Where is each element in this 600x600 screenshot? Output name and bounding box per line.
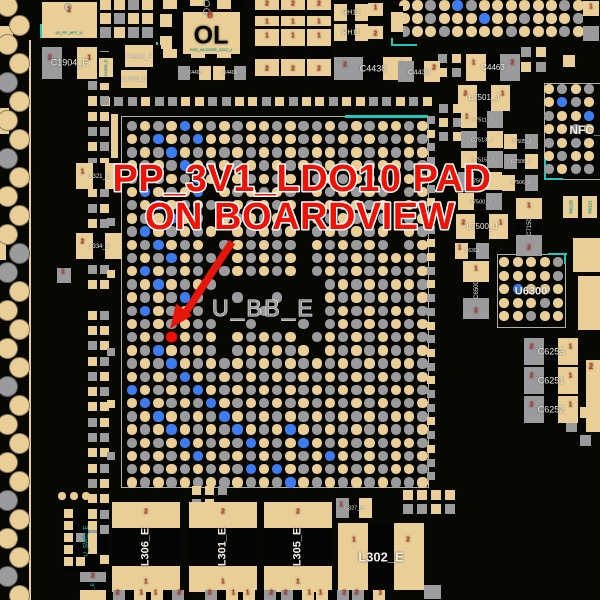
bga-pad[interactable] [193,358,203,368]
bga-pad[interactable] [100,96,109,105]
bga-pad[interactable] [351,398,361,408]
bga-pad[interactable] [114,97,123,106]
bga-pad[interactable] [351,477,361,487]
bga-pad[interactable] [364,438,374,448]
bga-pad[interactable] [259,121,269,131]
bga-pad[interactable] [423,97,432,106]
bga-pad[interactable] [364,266,374,276]
bga-pad[interactable] [272,345,282,355]
bga-pad[interactable] [559,13,570,24]
bga-pad[interactable] [140,345,150,355]
bga-pad[interactable] [153,345,163,355]
bga-pad[interactable] [325,160,335,170]
bga-pad[interactable] [382,97,391,106]
bga-pad[interactable] [312,226,322,236]
bga-pad[interactable] [404,358,414,368]
bga-pad[interactable] [206,160,216,170]
bga-pad[interactable] [232,213,242,223]
bga-pad[interactable] [417,504,427,514]
bga-pad[interactable] [166,358,176,368]
bga-pad[interactable] [193,147,203,157]
bga-pad[interactable] [232,121,242,131]
component-L302_E[interactable]: 12L302_E [338,523,424,590]
bga-pad[interactable] [153,187,163,197]
bga-pad[interactable] [193,385,203,395]
bga-pad[interactable] [100,418,109,427]
bga-pad[interactable] [100,494,109,503]
bga-pad[interactable] [404,213,414,223]
bga-pad[interactable] [351,160,361,170]
bga-pad[interactable] [219,438,229,448]
bga-pad[interactable] [232,372,242,382]
bga-pad[interactable] [153,477,163,487]
bga-pad[interactable] [193,292,203,302]
bga-pad[interactable] [206,358,216,368]
component-_E[interactable]: 2_E [80,572,106,600]
bga-pad[interactable] [325,187,335,197]
component-cap[interactable]: 12 [255,29,279,76]
bga-pad[interactable] [364,372,374,382]
bga-pad[interactable] [259,411,269,421]
bga-pad[interactable] [369,97,378,106]
bga-pad[interactable] [166,253,176,263]
component-C1905_E[interactable]: C1905_E [114,70,154,88]
bga-pad[interactable] [166,200,176,210]
bga-pad[interactable] [378,477,388,487]
bga-pad[interactable] [513,298,523,308]
bga-pad[interactable] [259,187,269,197]
bga-pad[interactable] [378,147,388,157]
bga-pad[interactable] [298,385,308,395]
bga-pad[interactable] [206,226,216,236]
bga-pad[interactable] [88,311,97,320]
bga-pad[interactable] [580,435,591,446]
bga-pad[interactable] [364,121,374,131]
bga-pad[interactable] [312,451,322,461]
bga-pad[interactable] [205,486,214,495]
bga-pad[interactable] [553,257,563,267]
bga-pad[interactable] [431,490,441,500]
bga-pad[interactable] [312,147,322,157]
bga-pad[interactable] [100,464,109,473]
bga-pad[interactable] [259,240,269,250]
bga-pad[interactable] [246,345,256,355]
bga-pad[interactable] [127,187,137,197]
bga-pad[interactable] [338,345,348,355]
bga-pad[interactable] [580,407,591,418]
via-pad[interactable] [0,34,18,55]
bga-pad[interactable] [272,292,282,302]
bga-pad[interactable] [351,253,361,263]
bga-pad[interactable] [351,200,361,210]
bga-pad[interactable] [521,47,531,57]
bga-pad[interactable] [153,240,163,250]
bga-pad[interactable] [153,200,163,210]
bga-pad[interactable] [70,492,78,500]
bga-pad[interactable] [325,345,335,355]
bga-pad[interactable] [219,451,229,461]
bga-pad[interactable] [325,411,335,421]
bga-pad[interactable] [285,253,295,263]
bga-pad[interactable] [452,0,463,11]
bga-pad[interactable] [219,187,229,197]
bga-pad[interactable] [246,147,256,157]
bga-pad[interactable] [285,147,295,157]
bga-pad[interactable] [325,174,335,184]
bga-pad[interactable] [553,311,563,321]
bga-pad[interactable] [153,385,163,395]
bga-pad[interactable] [351,226,361,236]
bga-pad[interactable] [364,292,374,302]
bga-pad[interactable] [193,345,203,355]
bga-pad[interactable] [364,424,374,434]
bga-pad[interactable] [232,358,242,368]
bga-pad[interactable] [439,104,448,113]
bga-pad[interactable] [404,477,414,487]
bga-pad[interactable] [351,438,361,448]
bga-pad[interactable] [232,253,242,263]
bga-pad[interactable] [571,84,581,94]
bga-pad[interactable] [513,271,523,281]
bga-pad[interactable] [140,424,150,434]
via-pad[interactable] [0,414,18,435]
bga-pad[interactable] [180,147,190,157]
bga-pad[interactable] [391,319,401,329]
bga-pad[interactable] [193,213,203,223]
bga-pad[interactable] [519,13,530,24]
bga-pad[interactable] [153,438,163,448]
bga-pad[interactable] [526,284,536,294]
bga-pad[interactable] [193,306,203,316]
bga-pad[interactable] [431,504,441,514]
bga-pad[interactable] [107,348,115,356]
via-pad[interactable] [9,433,30,454]
bga-pad[interactable] [544,124,554,134]
via-pad[interactable] [0,262,18,283]
bga-pad[interactable] [404,226,414,236]
bga-pad[interactable] [544,84,554,94]
bga-pad[interactable] [222,97,231,106]
bga-pad[interactable] [180,121,190,131]
bga-pad[interactable] [427,130,435,138]
component-cap[interactable]: 21 [352,590,385,600]
bga-pad[interactable] [298,451,308,461]
bga-pad[interactable] [351,385,361,395]
component-C334_E[interactable]: 2C334_E [76,233,122,259]
bga-pad[interactable] [378,160,388,170]
bga-pad[interactable] [206,424,216,434]
bga-pad[interactable] [140,147,150,157]
bga-pad[interactable] [232,464,242,474]
bga-pad[interactable] [64,545,73,554]
via-pad[interactable] [0,452,18,473]
bga-pad[interactable] [499,284,509,294]
component-cap[interactable]: 21 [307,0,331,26]
bga-pad[interactable] [153,319,163,329]
bga-pad[interactable] [153,226,163,236]
bga-pad[interactable] [259,424,269,434]
bga-pad[interactable] [259,385,269,395]
bga-pad[interactable] [141,97,150,106]
bga-pad[interactable] [100,387,109,396]
bga-pad[interactable] [404,292,414,302]
bga-pad[interactable] [338,147,348,157]
bga-pad[interactable] [526,311,536,321]
bga-pad[interactable] [206,411,216,421]
bga-pad[interactable] [180,174,190,184]
bga-pad[interactable] [100,188,109,197]
bga-pad[interactable] [88,402,97,411]
via-pad[interactable] [9,585,30,600]
bga-pad[interactable] [391,292,401,302]
bga-pad[interactable] [58,492,66,500]
bga-pad[interactable] [285,358,295,368]
via-pad[interactable] [0,224,18,245]
component-L305_E[interactable]: 21L305_E [264,502,332,592]
via-pad[interactable] [0,72,18,93]
bga-pad[interactable] [427,431,435,439]
bga-pad[interactable] [193,372,203,382]
bga-pad[interactable] [166,292,176,302]
bga-pad[interactable] [427,198,435,206]
bga-pad[interactable] [153,451,163,461]
bga-pad[interactable] [412,13,423,24]
bga-pad[interactable] [513,311,523,321]
bga-pad[interactable] [325,253,335,263]
bga-pad[interactable] [166,451,176,461]
bga-pad[interactable] [246,438,256,448]
bga-pad[interactable] [127,345,137,355]
bga-pad[interactable] [153,279,163,289]
bga-pad[interactable] [166,213,176,223]
bga-pad[interactable] [100,372,109,381]
bga-pad[interactable] [219,372,229,382]
bga-pad[interactable] [445,490,455,500]
bga-pad[interactable] [391,147,401,157]
bga-pad[interactable] [100,280,109,289]
bga-pad[interactable] [166,372,176,382]
bga-pad[interactable] [100,142,109,151]
bga-pad[interactable] [526,257,536,267]
bga-pad[interactable] [364,174,374,184]
bga-pad[interactable] [312,213,322,223]
bga-pad[interactable] [427,308,435,316]
bga-pad[interactable] [232,424,242,434]
bga-pad[interactable] [492,13,503,24]
bga-pad[interactable] [427,143,435,151]
bga-pad[interactable] [259,253,269,263]
bga-pad[interactable] [127,240,137,250]
bga-pad[interactable] [298,424,308,434]
via-pad[interactable] [9,53,30,74]
bga-pad[interactable] [378,372,388,382]
bga-pad[interactable] [427,239,435,247]
bga-pad[interactable] [427,335,435,343]
bga-pad[interactable] [142,13,153,24]
bga-pad[interactable] [364,200,374,210]
bga-pad[interactable] [584,111,594,121]
component-C1904_E[interactable]: 21C1904_E [42,47,97,79]
component-cap[interactable]: 12 [151,590,184,600]
bga-pad[interactable] [378,358,388,368]
bga-pad[interactable] [100,204,109,213]
bga-pad[interactable] [329,97,338,106]
bga-pad[interactable] [128,13,139,24]
bga-pad[interactable] [272,147,282,157]
via-pad[interactable] [9,91,30,112]
bga-pad[interactable] [289,97,298,106]
bga-pad[interactable] [499,257,509,267]
bga-pad[interactable] [128,0,139,10]
bga-pad[interactable] [540,311,550,321]
via-pad[interactable] [9,167,30,188]
bga-pad[interactable] [232,477,242,487]
bga-pad[interactable] [325,385,335,395]
bga-pad[interactable] [127,174,137,184]
bga-pad[interactable] [259,345,269,355]
bga-pad[interactable] [571,97,581,107]
bga-pad[interactable] [351,279,361,289]
bga-pad[interactable] [64,509,73,518]
component-C6252[interactable]: 21C6252 [524,396,578,423]
bga-pad[interactable] [584,151,594,161]
bga-pad[interactable] [285,372,295,382]
bga-pad[interactable] [427,322,435,330]
via-pad[interactable] [9,281,30,302]
bga-pad[interactable] [180,477,190,487]
bga-pad[interactable] [232,160,242,170]
bga-pad[interactable] [546,26,557,37]
bga-pad[interactable] [107,218,115,226]
bga-pad[interactable] [246,358,256,368]
bga-pad[interactable] [88,341,97,350]
bga-pad[interactable] [364,411,374,421]
bga-pad[interactable] [285,385,295,395]
bga-pad[interactable] [232,266,242,276]
bga-pad[interactable] [219,464,229,474]
bga-pad[interactable] [452,68,461,77]
bga-pad[interactable] [378,411,388,421]
bga-pad[interactable] [378,240,388,250]
component-cap[interactable]: 12 [307,29,331,76]
component-R7506_J[interactable]: R7506_J [504,154,538,169]
bga-pad[interactable] [127,372,137,382]
bga-pad[interactable] [521,62,531,72]
bga-pad[interactable] [285,266,295,276]
bga-pad[interactable] [88,219,97,228]
component-C321_E[interactable]: 1C321_E [76,163,122,189]
bga-pad[interactable] [351,134,361,144]
bga-pad[interactable] [219,160,229,170]
bga-pad[interactable] [298,319,308,329]
bga-pad[interactable] [425,13,436,24]
bga-pad[interactable] [391,253,401,263]
bga-pad[interactable] [100,311,109,320]
bga-pad[interactable] [479,0,490,11]
bga-pad[interactable] [127,438,137,448]
bga-pad[interactable] [351,187,361,197]
bga-pad[interactable] [533,0,544,11]
bga-pad[interactable] [88,280,97,289]
bga-pad[interactable] [153,358,163,368]
bga-pad[interactable] [427,417,435,425]
bga-pad[interactable] [536,62,546,72]
bga-pad[interactable] [180,345,190,355]
bga-pad[interactable] [338,279,348,289]
bga-pad[interactable] [140,226,150,236]
bga-pad[interactable] [526,271,536,281]
bga-pad[interactable] [285,174,295,184]
bga-pad[interactable] [232,200,242,210]
bga-pad[interactable] [153,372,163,382]
bga-pad[interactable] [166,411,176,421]
via-pad[interactable] [0,338,18,359]
bga-pad[interactable] [193,253,203,263]
via-pad[interactable] [0,0,18,17]
bga-pad[interactable] [544,151,554,161]
bga-pad[interactable] [140,411,150,421]
bga-pad[interactable] [246,240,256,250]
bga-pad[interactable] [107,270,115,278]
bga-pad[interactable] [351,306,361,316]
bga-pad[interactable] [166,438,176,448]
bga-pad[interactable] [499,271,509,281]
bga-pad[interactable] [351,332,361,342]
bga-pad[interactable] [364,451,374,461]
bga-pad[interactable] [285,332,295,342]
bga-pad[interactable] [506,13,517,24]
bga-pad[interactable] [107,452,115,460]
bga-pad[interactable] [378,451,388,461]
bga-pad[interactable] [259,147,269,157]
bga-pad[interactable] [427,253,435,261]
bga-pad[interactable] [546,13,557,24]
bga-pad[interactable] [466,13,477,24]
bga-pad[interactable] [259,160,269,170]
component-cap[interactable]: 21 [281,0,305,26]
bga-pad[interactable] [338,424,348,434]
bga-pad[interactable] [391,385,401,395]
bga-pad[interactable] [378,253,388,263]
component-cap[interactable]: 21 [281,590,314,600]
bga-pad[interactable] [166,226,176,236]
bga-pad[interactable] [325,213,335,223]
bga-pad[interactable] [166,240,176,250]
component-cap[interactable]: 21 [205,590,238,600]
bga-pad[interactable] [232,398,242,408]
bga-pad[interactable] [540,271,550,281]
bga-pad[interactable] [351,174,361,184]
bga-pad[interactable] [232,226,242,236]
bga-pad[interactable] [553,298,563,308]
component-L7500_J[interactable]: 21L7500_J [456,214,508,239]
bga-pad[interactable] [166,398,176,408]
bga-pad[interactable] [259,226,269,236]
bga-pad[interactable] [351,424,361,434]
bga-pad[interactable] [180,385,190,395]
bga-pad[interactable] [466,26,477,37]
bga-pad[interactable] [396,97,405,106]
bga-pad[interactable] [312,372,322,382]
bga-pad[interactable] [219,213,229,223]
bga-pad[interactable] [325,372,335,382]
bga-pad[interactable] [427,116,435,124]
bga-pad[interactable] [219,385,229,395]
bga-pad[interactable] [219,266,229,276]
bga-pad[interactable] [100,525,109,534]
bga-pad[interactable] [391,451,401,461]
bga-pad[interactable] [127,121,137,131]
